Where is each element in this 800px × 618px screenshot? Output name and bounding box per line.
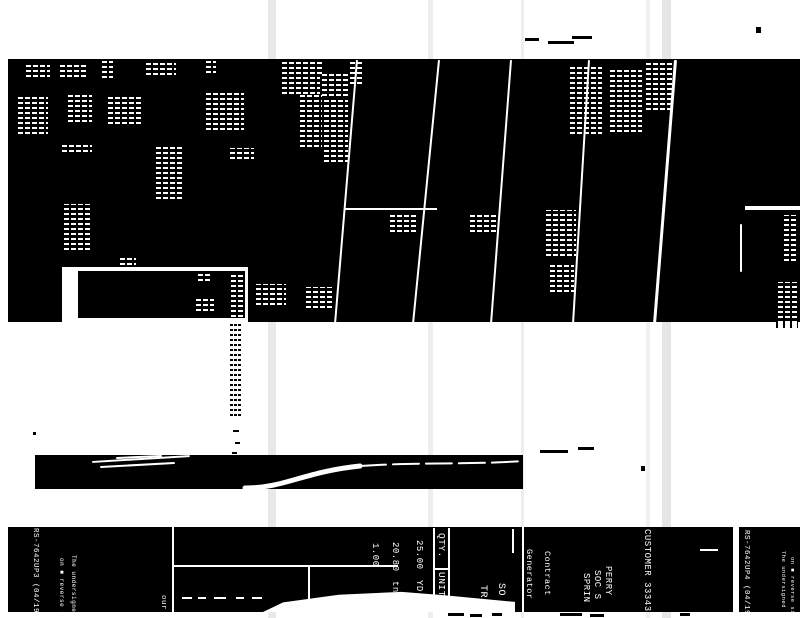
row1-qty: 25.00 bbox=[414, 540, 423, 570]
item-text-so: SO bbox=[495, 583, 505, 596]
row2-qty: 20.80 bbox=[390, 542, 399, 572]
address-line-1: PERRY bbox=[603, 566, 612, 596]
contract-label: Contract bbox=[543, 551, 552, 596]
misc-text: our b bbox=[159, 595, 167, 618]
address-line-2: SOC S bbox=[592, 570, 601, 600]
row2-unit: tn bbox=[390, 581, 399, 593]
address-line-3: SPRIN bbox=[581, 573, 590, 603]
scanned-receipt-image: RS-7642UP3 (04/19) The undersigned h on … bbox=[0, 0, 800, 618]
row3-qty: 1.00 bbox=[370, 543, 379, 567]
fine-print-line-1: The undersigned h bbox=[70, 555, 76, 618]
row1-unit: YD bbox=[414, 580, 423, 592]
generator-label: Generator bbox=[525, 549, 534, 599]
fine-print-line-2: on ■ reverse side bbox=[58, 558, 64, 618]
fine-print-right-1: The undersigned h bbox=[781, 551, 787, 616]
fine-print-right-2: on ■ reverse side bbox=[790, 557, 796, 618]
form-number-left: RS-7642UP3 (04/19) bbox=[31, 528, 39, 618]
qty-header: QTY. bbox=[437, 533, 447, 558]
item-text-tr: TR bbox=[477, 585, 487, 598]
form-number-right: RS-7642UP4 (04/19) bbox=[742, 530, 750, 618]
unit-header: UNIT bbox=[437, 572, 447, 597]
text-layer: RS-7642UP3 (04/19) The undersigned h on … bbox=[0, 0, 800, 618]
customer-number: CUSTOMER 33343 bbox=[642, 529, 651, 612]
